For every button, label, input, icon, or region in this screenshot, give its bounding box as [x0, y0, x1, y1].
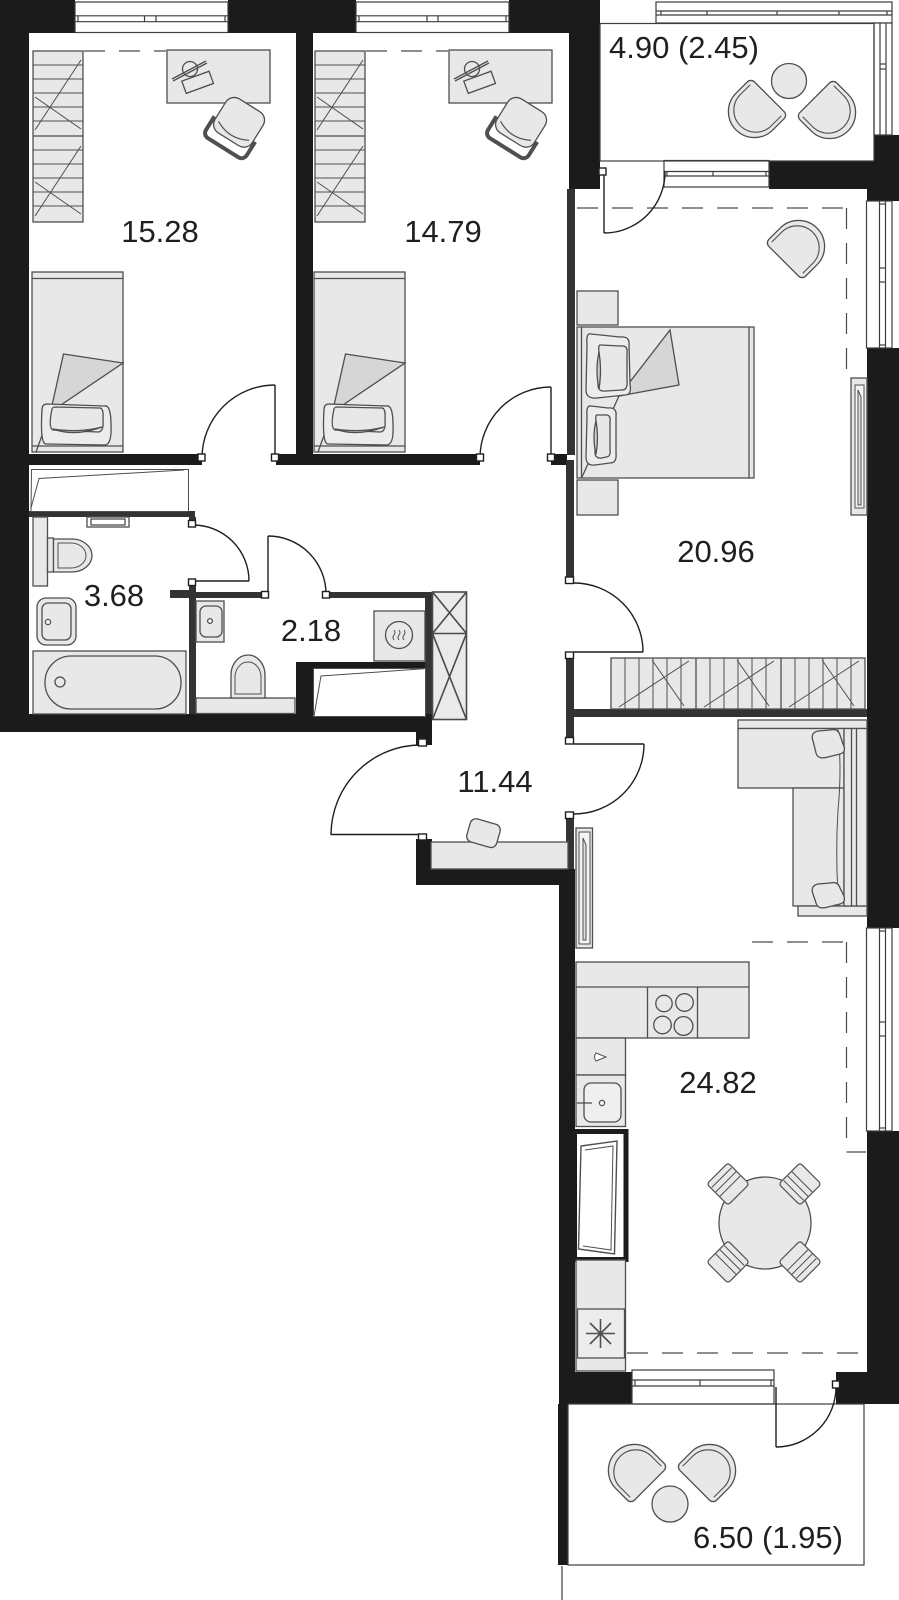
- svg-text:4.90 (2.45): 4.90 (2.45): [609, 30, 759, 65]
- svg-text:2.18: 2.18: [281, 613, 341, 648]
- svg-text:20.96: 20.96: [677, 534, 755, 569]
- svg-text:3.68: 3.68: [84, 578, 144, 613]
- svg-text:15.28: 15.28: [121, 214, 199, 249]
- svg-text:11.44: 11.44: [457, 764, 532, 799]
- svg-text:24.82: 24.82: [679, 1065, 757, 1100]
- svg-text:6.50 (1.95): 6.50 (1.95): [693, 1520, 843, 1555]
- svg-text:14.79: 14.79: [404, 214, 482, 249]
